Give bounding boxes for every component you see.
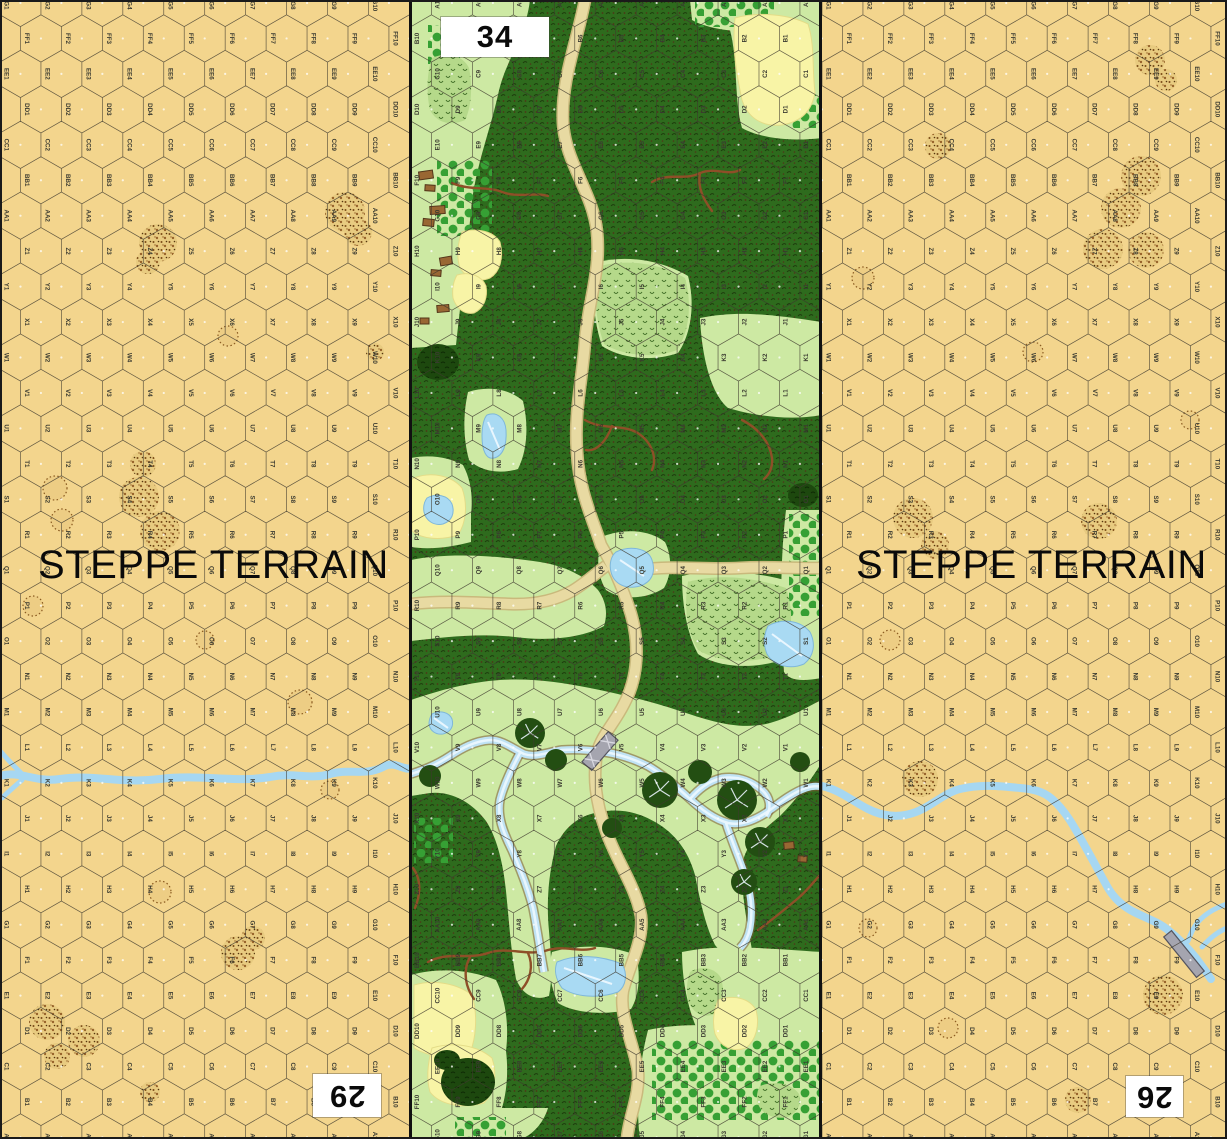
board-number-29: 29 xyxy=(313,1074,381,1117)
svg-text:H7: H7 xyxy=(1091,885,1098,893)
svg-text:GG2: GG2 xyxy=(44,0,51,10)
svg-text:M2: M2 xyxy=(866,708,873,717)
svg-text:G9: G9 xyxy=(475,211,482,220)
svg-text:H6: H6 xyxy=(228,885,235,893)
svg-text:DD9: DD9 xyxy=(351,103,358,116)
svg-text:J3: J3 xyxy=(927,815,934,822)
svg-text:N1: N1 xyxy=(845,673,852,681)
svg-text:FF6: FF6 xyxy=(1050,33,1057,45)
svg-text:L3: L3 xyxy=(927,744,934,752)
svg-text:R1: R1 xyxy=(782,601,789,609)
svg-text:AA7: AA7 xyxy=(557,918,564,931)
svg-text:L9: L9 xyxy=(351,744,358,752)
svg-text:L10: L10 xyxy=(1214,742,1221,753)
svg-text:Y10: Y10 xyxy=(371,281,378,293)
svg-text:FF9: FF9 xyxy=(1173,33,1180,45)
svg-text:X2: X2 xyxy=(741,814,748,822)
svg-text:C10: C10 xyxy=(371,1061,378,1073)
svg-text:B6: B6 xyxy=(578,34,585,42)
svg-text:K6: K6 xyxy=(598,353,605,361)
svg-text:S3: S3 xyxy=(85,496,92,504)
svg-text:O5: O5 xyxy=(988,637,995,646)
svg-text:E8: E8 xyxy=(516,140,523,148)
svg-text:Y7: Y7 xyxy=(557,849,564,857)
svg-text:F5: F5 xyxy=(1009,957,1016,965)
svg-text:Z3: Z3 xyxy=(105,248,112,256)
svg-text:L8: L8 xyxy=(1132,744,1139,752)
steppe-terrain-label-right: STEPPE TERRAIN xyxy=(856,543,1207,588)
svg-text:AA4: AA4 xyxy=(947,210,954,223)
svg-text:GG8: GG8 xyxy=(516,1130,523,1139)
svg-text:FF3: FF3 xyxy=(105,33,112,45)
svg-text:T10: T10 xyxy=(414,671,421,682)
svg-text:Z1: Z1 xyxy=(23,248,30,256)
svg-text:C1: C1 xyxy=(3,1063,10,1071)
svg-text:T7: T7 xyxy=(537,672,544,680)
svg-text:C9: C9 xyxy=(475,69,482,77)
svg-text:L1: L1 xyxy=(845,744,852,752)
svg-text:I10: I10 xyxy=(1193,849,1200,858)
svg-text:X9: X9 xyxy=(351,318,358,326)
svg-text:FF8: FF8 xyxy=(496,1096,503,1108)
svg-text:H3: H3 xyxy=(105,885,112,893)
svg-text:G10: G10 xyxy=(434,209,441,221)
svg-text:CC9: CC9 xyxy=(330,139,337,152)
svg-text:GG8: GG8 xyxy=(1111,0,1118,10)
svg-text:CC2: CC2 xyxy=(866,139,873,152)
svg-text:EE10: EE10 xyxy=(1193,66,1200,82)
svg-text:FF4: FF4 xyxy=(968,33,975,45)
svg-text:K7: K7 xyxy=(557,353,564,361)
svg-text:U7: U7 xyxy=(557,707,564,715)
svg-text:W9: W9 xyxy=(475,778,482,788)
svg-text:S5: S5 xyxy=(988,496,995,504)
svg-text:F9: F9 xyxy=(351,957,358,965)
svg-text:D8: D8 xyxy=(496,105,503,113)
svg-text:X6: X6 xyxy=(1050,318,1057,326)
svg-text:BB4: BB4 xyxy=(146,174,153,187)
svg-text:I4: I4 xyxy=(125,851,132,857)
svg-text:X8: X8 xyxy=(1132,318,1139,326)
svg-text:D9: D9 xyxy=(1173,1027,1180,1035)
svg-text:M10: M10 xyxy=(434,422,441,435)
svg-text:J6: J6 xyxy=(228,815,235,822)
svg-text:EE2: EE2 xyxy=(44,68,51,80)
svg-text:Y10: Y10 xyxy=(1193,281,1200,293)
svg-text:F3: F3 xyxy=(700,176,707,184)
svg-text:U5: U5 xyxy=(639,707,646,715)
svg-text:P1: P1 xyxy=(782,530,789,538)
svg-text:Q4: Q4 xyxy=(680,566,687,575)
svg-text:FF10: FF10 xyxy=(414,1094,421,1109)
svg-text:V7: V7 xyxy=(269,389,276,397)
svg-text:FF10: FF10 xyxy=(1214,31,1221,46)
svg-text:T4: T4 xyxy=(968,460,975,468)
svg-text:F9: F9 xyxy=(455,176,462,184)
svg-text:FF10: FF10 xyxy=(392,31,399,46)
svg-text:Z6: Z6 xyxy=(1050,248,1057,256)
svg-text:AA6: AA6 xyxy=(598,918,605,931)
svg-text:H7: H7 xyxy=(537,247,544,255)
svg-text:X1: X1 xyxy=(845,318,852,326)
svg-text:P8: P8 xyxy=(310,602,317,610)
svg-text:D7: D7 xyxy=(269,1027,276,1035)
svg-text:P6: P6 xyxy=(1050,602,1057,610)
svg-text:G3: G3 xyxy=(85,921,92,930)
svg-text:T9: T9 xyxy=(455,672,462,680)
svg-text:AA5: AA5 xyxy=(166,210,173,223)
svg-text:S6: S6 xyxy=(207,496,214,504)
svg-text:GG2: GG2 xyxy=(866,0,873,10)
svg-text:E6: E6 xyxy=(598,140,605,148)
svg-text:P9: P9 xyxy=(351,602,358,610)
svg-text:F4: F4 xyxy=(146,957,153,965)
svg-text:D5: D5 xyxy=(619,105,626,113)
svg-text:J8: J8 xyxy=(1132,815,1139,822)
svg-text:BB8: BB8 xyxy=(1132,174,1139,187)
svg-text:M9: M9 xyxy=(475,424,482,433)
svg-text:Y7: Y7 xyxy=(1070,283,1077,291)
svg-text:EE7: EE7 xyxy=(248,68,255,80)
svg-text:K10: K10 xyxy=(1193,777,1200,789)
svg-text:Y7: Y7 xyxy=(248,283,255,291)
svg-text:S4: S4 xyxy=(125,496,132,504)
svg-text:S4: S4 xyxy=(680,637,687,645)
svg-text:K3: K3 xyxy=(907,779,914,787)
building xyxy=(420,318,429,324)
svg-text:S7: S7 xyxy=(248,496,255,504)
board-number-34-text: 34 xyxy=(477,19,513,55)
svg-text:I8: I8 xyxy=(289,851,296,857)
svg-text:W5: W5 xyxy=(988,353,995,363)
svg-text:D2: D2 xyxy=(886,1027,893,1035)
svg-text:O1: O1 xyxy=(825,637,832,646)
svg-text:F8: F8 xyxy=(310,957,317,965)
svg-text:O8: O8 xyxy=(1111,637,1118,646)
svg-text:B4: B4 xyxy=(660,34,667,42)
svg-text:N8: N8 xyxy=(496,459,503,467)
svg-text:H5: H5 xyxy=(619,247,626,255)
svg-text:V5: V5 xyxy=(619,743,626,751)
svg-text:N1: N1 xyxy=(782,459,789,467)
svg-text:G2: G2 xyxy=(44,921,51,930)
svg-text:Y6: Y6 xyxy=(207,283,214,291)
svg-text:G3: G3 xyxy=(721,211,728,220)
svg-text:AA2: AA2 xyxy=(866,210,873,223)
svg-text:GG3: GG3 xyxy=(85,0,92,10)
svg-text:M3: M3 xyxy=(85,708,92,717)
svg-text:C3: C3 xyxy=(85,1063,92,1071)
svg-text:C4: C4 xyxy=(680,69,687,77)
svg-text:EE3: EE3 xyxy=(85,68,92,80)
svg-text:U6: U6 xyxy=(207,424,214,432)
svg-text:G1: G1 xyxy=(825,921,832,930)
svg-text:DD8: DD8 xyxy=(496,1024,503,1037)
svg-text:B1: B1 xyxy=(782,34,789,42)
svg-text:V7: V7 xyxy=(1091,389,1098,397)
svg-text:V5: V5 xyxy=(187,389,194,397)
svg-text:A8: A8 xyxy=(516,0,523,7)
svg-text:G1: G1 xyxy=(803,211,810,220)
svg-text:AA3: AA3 xyxy=(85,210,92,223)
svg-text:J10: J10 xyxy=(392,813,399,824)
svg-text:A6: A6 xyxy=(207,1133,214,1139)
svg-text:I8: I8 xyxy=(516,283,523,289)
svg-text:V3: V3 xyxy=(927,389,934,397)
svg-text:A6: A6 xyxy=(598,0,605,7)
svg-text:A7: A7 xyxy=(248,1133,255,1139)
svg-text:F1: F1 xyxy=(845,957,852,965)
svg-text:M5: M5 xyxy=(166,708,173,717)
svg-text:D2: D2 xyxy=(741,105,748,113)
svg-text:M2: M2 xyxy=(762,424,769,433)
svg-text:Q10: Q10 xyxy=(434,564,441,576)
svg-text:C3: C3 xyxy=(721,69,728,77)
svg-text:Z2: Z2 xyxy=(886,248,893,256)
svg-text:C6: C6 xyxy=(1029,1063,1036,1071)
svg-text:DD2: DD2 xyxy=(886,103,893,116)
svg-text:E10: E10 xyxy=(371,990,378,1002)
svg-text:A10: A10 xyxy=(434,0,441,9)
svg-text:O10: O10 xyxy=(434,493,441,505)
svg-text:GG10: GG10 xyxy=(371,0,378,12)
svg-text:DD6: DD6 xyxy=(1050,103,1057,116)
svg-text:D1: D1 xyxy=(23,1027,30,1035)
svg-text:P4: P4 xyxy=(146,602,153,610)
svg-text:Z8: Z8 xyxy=(310,248,317,256)
svg-text:GG2: GG2 xyxy=(762,1130,769,1139)
svg-text:G5: G5 xyxy=(988,921,995,930)
svg-text:M8: M8 xyxy=(289,708,296,717)
svg-text:V1: V1 xyxy=(23,389,30,397)
svg-text:T1: T1 xyxy=(23,460,30,468)
svg-text:C8: C8 xyxy=(516,69,523,77)
svg-text:I5: I5 xyxy=(166,851,173,857)
svg-text:R1: R1 xyxy=(845,531,852,539)
svg-text:L8: L8 xyxy=(496,389,503,397)
svg-text:N5: N5 xyxy=(619,459,626,467)
svg-text:M7: M7 xyxy=(248,708,255,717)
svg-text:DD9: DD9 xyxy=(455,1024,462,1037)
svg-text:K8: K8 xyxy=(516,353,523,361)
svg-text:S2: S2 xyxy=(44,496,51,504)
svg-text:L1: L1 xyxy=(782,389,789,397)
svg-text:H3: H3 xyxy=(700,247,707,255)
svg-text:X7: X7 xyxy=(1091,318,1098,326)
svg-text:V5: V5 xyxy=(1009,389,1016,397)
svg-text:L4: L4 xyxy=(968,744,975,752)
svg-text:P7: P7 xyxy=(537,530,544,538)
svg-text:DD1: DD1 xyxy=(782,1024,789,1037)
svg-text:J7: J7 xyxy=(269,815,276,822)
svg-text:R8: R8 xyxy=(1132,531,1139,539)
svg-text:M1: M1 xyxy=(825,708,832,717)
svg-text:H1: H1 xyxy=(782,247,789,255)
svg-text:E9: E9 xyxy=(1152,992,1159,1000)
svg-text:CC6: CC6 xyxy=(207,139,214,152)
svg-text:B4: B4 xyxy=(968,1098,975,1106)
svg-text:P5: P5 xyxy=(1009,602,1016,610)
svg-text:C6: C6 xyxy=(598,69,605,77)
svg-text:E5: E5 xyxy=(639,140,646,148)
svg-text:G2: G2 xyxy=(762,211,769,220)
svg-text:I3: I3 xyxy=(85,851,92,857)
svg-text:Q6: Q6 xyxy=(598,566,605,575)
svg-text:AA8: AA8 xyxy=(289,210,296,223)
svg-text:A6: A6 xyxy=(1029,1133,1036,1139)
svg-text:A8: A8 xyxy=(289,1133,296,1139)
svg-text:Q2: Q2 xyxy=(762,566,769,575)
svg-text:N9: N9 xyxy=(351,673,358,681)
svg-text:T4: T4 xyxy=(146,460,153,468)
svg-text:GG1: GG1 xyxy=(803,1130,810,1139)
svg-text:U10: U10 xyxy=(1193,423,1200,435)
building xyxy=(784,841,795,849)
svg-text:G4: G4 xyxy=(680,211,687,220)
svg-text:H8: H8 xyxy=(496,247,503,255)
svg-text:GG9: GG9 xyxy=(1152,0,1159,10)
svg-text:EE6: EE6 xyxy=(1029,68,1036,80)
svg-text:F4: F4 xyxy=(660,176,667,184)
svg-text:G7: G7 xyxy=(248,921,255,930)
svg-text:CC5: CC5 xyxy=(166,139,173,152)
svg-text:EE7: EE7 xyxy=(1070,68,1077,80)
svg-text:O7: O7 xyxy=(248,637,255,646)
svg-text:AA1: AA1 xyxy=(825,210,832,223)
svg-text:B10: B10 xyxy=(1214,1096,1221,1108)
svg-text:GG7: GG7 xyxy=(1070,0,1077,10)
svg-text:M5: M5 xyxy=(639,424,646,433)
svg-text:FF9: FF9 xyxy=(455,1096,462,1108)
svg-text:E1: E1 xyxy=(3,992,10,1000)
svg-text:G6: G6 xyxy=(598,211,605,220)
svg-text:V8: V8 xyxy=(1132,389,1139,397)
svg-text:L1: L1 xyxy=(23,744,30,752)
svg-text:CC7: CC7 xyxy=(557,989,564,1002)
svg-text:D7: D7 xyxy=(1091,1027,1098,1035)
svg-text:M9: M9 xyxy=(1152,708,1159,717)
svg-text:K10: K10 xyxy=(434,351,441,363)
svg-text:F1: F1 xyxy=(23,957,30,965)
svg-text:Y3: Y3 xyxy=(907,283,914,291)
svg-text:DD4: DD4 xyxy=(660,1024,667,1037)
svg-text:R8: R8 xyxy=(496,601,503,609)
svg-text:N5: N5 xyxy=(1009,673,1016,681)
svg-text:C3: C3 xyxy=(907,1063,914,1071)
svg-text:EE5: EE5 xyxy=(166,68,173,80)
svg-text:CC5: CC5 xyxy=(988,139,995,152)
svg-text:K5: K5 xyxy=(639,353,646,361)
svg-text:N2: N2 xyxy=(741,459,748,467)
svg-text:O10: O10 xyxy=(1193,635,1200,647)
svg-text:J5: J5 xyxy=(187,815,194,822)
svg-text:N3: N3 xyxy=(700,459,707,467)
svg-text:E6: E6 xyxy=(1029,992,1036,1000)
svg-text:R3: R3 xyxy=(105,531,112,539)
svg-text:P7: P7 xyxy=(1091,602,1098,610)
svg-text:EE2: EE2 xyxy=(762,1060,769,1072)
svg-text:GG5: GG5 xyxy=(166,0,173,10)
svg-text:W10: W10 xyxy=(434,776,441,789)
svg-text:U3: U3 xyxy=(721,707,728,715)
svg-text:W6: W6 xyxy=(207,353,214,363)
svg-text:I7: I7 xyxy=(557,283,564,289)
svg-text:A1: A1 xyxy=(825,1133,832,1139)
svg-text:O9: O9 xyxy=(475,495,482,504)
svg-text:M3: M3 xyxy=(721,424,728,433)
svg-text:A2: A2 xyxy=(866,1133,873,1139)
svg-text:W5: W5 xyxy=(166,353,173,363)
svg-text:S9: S9 xyxy=(330,496,337,504)
svg-text:R10: R10 xyxy=(1214,529,1221,541)
board-divider-right xyxy=(819,0,822,1139)
svg-text:CC7: CC7 xyxy=(1070,139,1077,152)
svg-text:J8: J8 xyxy=(496,318,503,325)
svg-text:BB9: BB9 xyxy=(1173,174,1180,187)
svg-text:A5: A5 xyxy=(166,1133,173,1139)
svg-text:U7: U7 xyxy=(1070,424,1077,432)
svg-text:BB10: BB10 xyxy=(414,952,421,968)
svg-text:D5: D5 xyxy=(187,1027,194,1035)
svg-text:CC1: CC1 xyxy=(3,139,10,152)
svg-text:W4: W4 xyxy=(947,353,954,363)
svg-text:L2: L2 xyxy=(741,389,748,397)
svg-text:FF4: FF4 xyxy=(660,1096,667,1108)
svg-text:G9: G9 xyxy=(1152,921,1159,930)
svg-text:BB7: BB7 xyxy=(1091,174,1098,187)
svg-text:A1: A1 xyxy=(803,0,810,7)
svg-text:A9: A9 xyxy=(475,0,482,7)
svg-text:B5: B5 xyxy=(619,34,626,42)
svg-text:W2: W2 xyxy=(44,353,51,363)
svg-text:N4: N4 xyxy=(968,673,975,681)
svg-text:R7: R7 xyxy=(537,601,544,609)
svg-text:I8: I8 xyxy=(1111,851,1118,857)
svg-text:M10: M10 xyxy=(371,706,378,719)
svg-text:U7: U7 xyxy=(248,424,255,432)
svg-text:P2: P2 xyxy=(886,602,893,610)
building xyxy=(437,304,450,312)
svg-text:O6: O6 xyxy=(598,495,605,504)
svg-text:DD6: DD6 xyxy=(228,103,235,116)
svg-text:S9: S9 xyxy=(1152,496,1159,504)
svg-text:Y3: Y3 xyxy=(85,283,92,291)
svg-text:DD2: DD2 xyxy=(64,103,71,116)
svg-text:W6: W6 xyxy=(598,778,605,788)
svg-text:Z7: Z7 xyxy=(537,885,544,893)
svg-text:U3: U3 xyxy=(85,424,92,432)
svg-text:FF3: FF3 xyxy=(927,33,934,45)
svg-text:K6: K6 xyxy=(207,779,214,787)
svg-text:S4: S4 xyxy=(947,496,954,504)
svg-text:M7: M7 xyxy=(557,424,564,433)
svg-text:Q3: Q3 xyxy=(721,566,728,575)
svg-text:AA6: AA6 xyxy=(1029,210,1036,223)
svg-text:W9: W9 xyxy=(330,353,337,363)
svg-text:E7: E7 xyxy=(557,140,564,148)
svg-text:Q7: Q7 xyxy=(557,566,564,575)
svg-text:K4: K4 xyxy=(680,353,687,361)
svg-text:DD2: DD2 xyxy=(741,1024,748,1037)
svg-text:N7: N7 xyxy=(537,459,544,467)
svg-text:D9: D9 xyxy=(351,1027,358,1035)
svg-text:D6: D6 xyxy=(1050,1027,1057,1035)
svg-text:R2: R2 xyxy=(886,531,893,539)
svg-text:L9: L9 xyxy=(1173,744,1180,752)
svg-text:U1: U1 xyxy=(3,424,10,432)
svg-text:T6: T6 xyxy=(578,672,585,680)
board-number-26: 26 xyxy=(1126,1076,1183,1117)
